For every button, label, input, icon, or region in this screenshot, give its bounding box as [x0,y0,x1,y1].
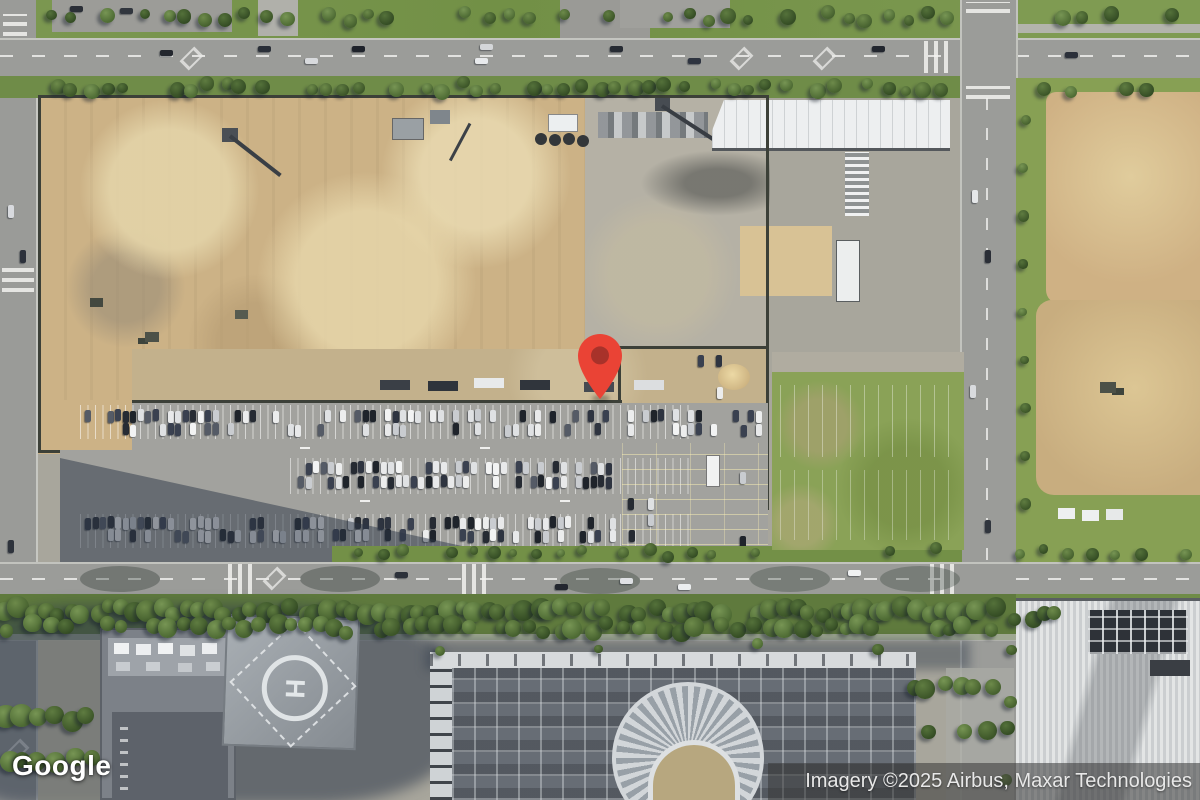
white-truck [706,455,720,487]
tree [1018,210,1030,222]
tree [242,602,257,617]
tree [531,549,541,559]
parked-car [396,475,402,487]
parked-car [716,355,722,367]
container [548,114,578,132]
tree [58,619,74,635]
parked-car [313,461,319,473]
vehicle [1065,52,1078,58]
crosswalk [228,564,252,594]
parked-car [598,463,604,475]
path [1014,24,1200,33]
parked-car [740,472,746,484]
parked-car [580,531,586,543]
parked-car [606,477,612,489]
tree [904,15,915,26]
parked-car [550,411,556,423]
parked-car [453,516,459,528]
parked-car [531,476,537,488]
parked-car [243,411,249,423]
parked-car [123,411,129,423]
stall-lines-east [622,443,768,545]
tree [260,10,273,23]
parked-car [393,411,399,423]
parked-car [343,476,349,488]
tree [1135,548,1148,561]
parked-car [298,476,304,488]
tree [985,623,999,637]
tree [1037,82,1051,96]
tree [84,84,99,99]
parked-car [175,411,181,423]
tree [966,600,986,620]
parked-car [358,476,364,488]
parked-car [643,410,649,422]
google-logo[interactable]: Google [12,750,111,782]
tree [0,624,13,638]
tree [1076,11,1088,23]
tree [707,550,715,558]
parked-car [748,410,754,422]
vehicle [970,385,976,398]
parked-car [756,411,762,423]
parked-car [493,476,499,488]
lane-line [986,80,988,560]
parked-car [456,475,462,487]
tree [339,626,353,640]
parked-car [403,475,409,487]
parked-car [385,409,391,421]
parked-car [588,531,594,543]
parked-car [490,518,496,530]
site-fence [618,346,768,349]
crosswalk [966,86,1010,99]
vehicle [8,205,14,218]
attribution-bar: Imagery ©2025 Airbus, Maxar Technologies [768,763,1200,800]
tree [1020,451,1030,461]
dirt-field-right [1046,92,1200,304]
parked-car [528,424,534,436]
parked-car [543,531,549,543]
parked-car [358,461,364,473]
tree [559,9,570,20]
parked-car [658,409,664,421]
parked-car [273,411,279,423]
tree [684,8,696,20]
parked-car [408,518,414,530]
parked-car [468,531,474,543]
parked-car [628,410,634,422]
parked-car [535,531,541,543]
parked-car [576,476,582,488]
lane-line [0,55,955,57]
tree [1104,6,1119,21]
tree [1119,82,1133,96]
tree [557,83,570,96]
parked-car [688,410,694,422]
vehicle [688,58,701,64]
parked-car [433,461,439,473]
tree [470,85,482,97]
crosswalk [924,41,954,73]
parked-car [213,410,219,422]
parked-car [553,477,559,489]
tree [743,85,753,95]
dirt-field-right-2 [1036,300,1200,495]
tree [490,83,501,94]
parked-car [546,477,552,489]
parked-car [370,410,376,422]
parked-car [558,530,564,542]
parked-car [381,476,387,488]
office-complex-top-ticks [430,654,916,666]
roof-lower-panel [112,712,228,800]
tree [70,605,89,624]
tree [780,9,796,25]
parked-car [696,423,702,435]
tree [746,617,762,633]
parked-car [198,411,204,423]
parked-car [535,518,541,530]
tree [320,83,333,96]
parked-car [513,531,519,543]
tree [397,544,409,556]
staging-strip [132,349,768,403]
tree [523,12,535,24]
parked-car [673,409,679,421]
tree [957,724,972,739]
tree [379,11,394,26]
parked-car [498,517,504,529]
vehicle [872,46,885,52]
tree [307,84,318,95]
pin-dot [591,346,609,364]
tree [523,620,536,633]
site-fence [38,95,768,98]
tree [810,83,826,99]
vehicle [480,44,493,50]
parked-car [603,410,609,422]
tree [930,542,942,554]
parked-car [490,529,496,541]
parked-car [153,409,159,421]
parked-car [610,518,616,530]
excavator [235,310,248,319]
parked-car [741,425,747,437]
parked-car [393,423,399,435]
tree [45,706,63,724]
parked-car [438,410,444,422]
container [430,110,450,124]
parked-car [591,476,597,488]
tree [504,8,516,20]
parked-car [535,410,541,422]
parked-car [160,424,166,436]
parked-car [381,462,387,474]
tree [1006,645,1017,656]
parked-car [756,424,762,436]
tree [285,618,297,630]
tree [280,12,294,26]
parked-car [629,530,635,542]
tree [1086,548,1099,561]
map-pin-icon[interactable] [577,333,623,400]
parked-car [696,410,702,422]
vehicle [555,584,568,590]
parked-car [130,425,136,437]
tree [488,546,501,559]
parked-car [576,462,582,474]
tree [915,679,934,698]
tree [102,83,114,95]
attribution-text: Imagery ©2025 Airbus, Maxar Technologies [805,770,1192,793]
parked-car [108,411,114,423]
tree [336,84,349,97]
faint-stall-lines [780,385,956,457]
parked-car [138,409,144,421]
tree [594,645,603,654]
truck-trailer [836,240,860,302]
parked-car [183,410,189,422]
rooftop-unit-dark [1150,660,1190,676]
spill-stain [640,150,770,216]
parked-car [430,410,436,422]
crosswalk [3,14,27,36]
tree [759,79,770,90]
parked-car [673,423,679,435]
tree [986,597,1006,617]
parked-car [295,425,301,437]
parked-car [190,410,196,422]
vehicle [972,190,978,203]
parked-car [123,423,129,435]
parked-car [490,410,496,422]
parked-car [448,476,454,488]
parked-car [460,518,466,530]
tree [594,599,610,615]
vehicle [395,572,408,578]
parked-car [426,462,432,474]
parked-car [325,410,331,422]
parked-car [475,423,481,435]
satellite-map[interactable]: H Google Imagery ©2025 Airbus, Maxar Tec… [0,0,1200,800]
parked-car [168,423,174,435]
stair-scaffold [845,152,869,216]
parked-car [115,409,121,421]
tree [470,546,478,554]
tree [164,10,176,22]
parked-car [468,517,474,529]
container [392,118,424,140]
vehicle [352,46,365,52]
tree [921,6,934,19]
tree [198,13,212,27]
parked-car [456,461,462,473]
parked-car [598,475,604,487]
parked-car [543,518,549,530]
lane-line [1016,578,1200,580]
parked-car [250,410,256,422]
tree [281,598,298,615]
excavator [145,332,159,342]
parked-car [460,529,466,541]
parked-car [588,410,594,422]
pin-body [578,334,622,399]
tree [617,621,630,634]
tree [177,9,192,24]
parked-car [513,424,519,436]
tree [711,78,722,89]
tree [934,83,948,97]
vehicle [70,6,83,12]
tree [872,644,883,655]
tree [1020,498,1031,509]
parked-car [366,461,372,473]
excavator [90,298,103,307]
rooftop-units-dark [1088,610,1188,654]
tree [29,708,47,726]
parked-car [553,461,559,473]
parked-car [688,423,694,435]
tree [509,549,517,557]
parked-car [396,461,402,473]
parked-car [388,477,394,489]
parked-car [558,517,564,529]
parked-car [453,410,459,422]
parked-car [606,463,612,475]
tree [200,76,215,91]
vehicle [848,570,861,576]
parked-car [565,424,571,436]
parked-car [408,410,414,422]
helipad-h-letter: H [279,678,311,699]
tree [542,84,553,95]
parked-car [471,462,477,474]
tree [644,543,657,556]
vehicle [620,578,633,584]
vehicle [985,250,991,263]
parked-car [306,463,312,475]
rooftop-unit [114,643,129,654]
parked-car [595,423,601,435]
faint-stall-lines [780,470,956,540]
tree [953,616,971,634]
parked-car [205,410,211,422]
parked-car [328,462,334,474]
vehicle [8,540,14,553]
shed [1058,508,1075,519]
tree [774,619,793,638]
tire-stack [535,133,547,145]
parked-car [430,517,436,529]
tree [484,12,496,24]
parked-car [498,530,504,542]
parked-car [205,423,211,435]
parked-car [651,410,657,422]
parked-car [475,409,481,421]
parked-car [355,410,361,422]
parked-car [538,462,544,474]
parked-car [400,410,406,422]
tree [1000,721,1014,735]
parked-car [628,498,634,510]
parked-car [336,463,342,475]
vehicle [160,50,173,56]
tree [435,646,445,656]
parked-car [717,387,723,399]
vehicle [678,584,691,590]
parked-car [385,517,391,529]
tree [656,77,671,92]
staging-truck [380,380,410,390]
parked-car [528,517,534,529]
vehicle [610,46,623,52]
tree [642,80,656,94]
parked-car [591,462,597,474]
parked-car [516,461,522,473]
vehicle [985,520,991,533]
parked-car [85,410,91,422]
tree [940,11,954,25]
parked-car [463,476,469,488]
parked-car [681,425,687,437]
tree [170,82,186,98]
vehicle [475,58,488,64]
crosswalk [966,2,1010,13]
parked-car [363,424,369,436]
parked-car [400,425,406,437]
parked-car [453,423,459,435]
parked-car [483,531,489,543]
parked-car [648,498,654,510]
tree [190,617,208,635]
rooftop-unit [116,662,130,671]
parked-car [306,477,312,489]
tree [46,10,56,20]
tree [618,547,628,557]
tree [844,13,854,23]
tree [443,615,462,634]
tree [885,546,894,555]
parked-car [328,477,334,489]
parked-car [235,410,241,422]
parked-car [538,475,544,487]
tree [222,617,236,631]
parked-car [385,424,391,436]
tree [1020,356,1029,365]
parked-car [373,461,379,473]
parked-car [733,410,739,422]
tree [1139,83,1153,97]
tree [730,622,746,638]
tree [862,78,873,89]
parked-car [475,518,481,530]
parked-car [175,424,181,436]
tree [780,79,793,92]
tree [1015,549,1025,559]
tree [446,547,457,558]
office-complex-left-column [430,668,452,800]
sand-pile [718,364,750,390]
parked-car [550,516,556,528]
tree [684,617,704,637]
tree [863,620,879,636]
lane-line [1016,55,1200,57]
parked-car [628,424,634,436]
tree [687,547,698,558]
parked-car [415,411,421,423]
parked-car [433,476,439,488]
